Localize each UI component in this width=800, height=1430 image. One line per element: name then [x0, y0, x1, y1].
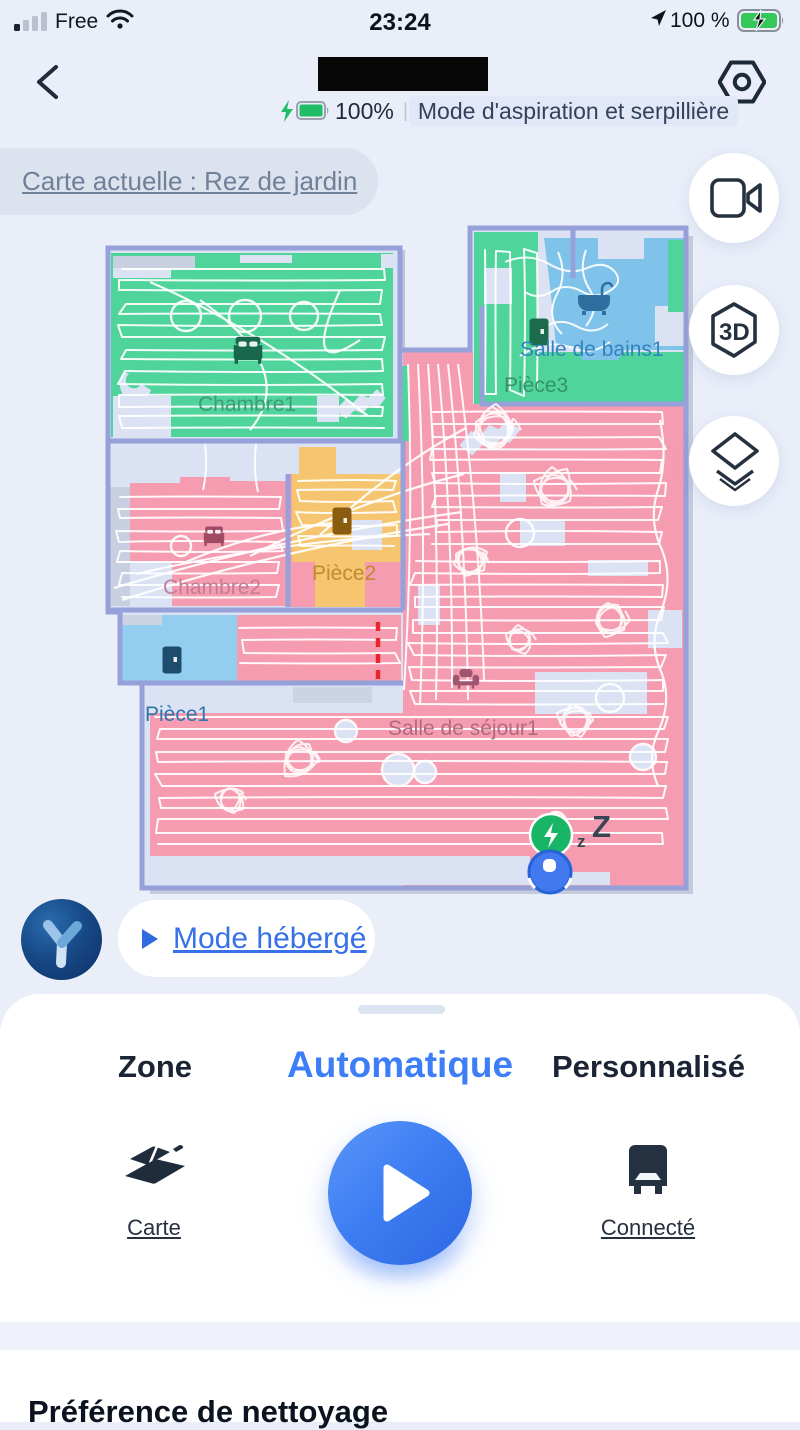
svg-text:Pièce2: Pièce2 [312, 562, 376, 585]
svg-text:z: z [577, 832, 586, 851]
svg-text:3D: 3D [719, 319, 750, 346]
svg-text:Chambre1: Chambre1 [198, 393, 296, 416]
svg-text:Salle de bains1: Salle de bains1 [520, 338, 664, 361]
svg-text:Pièce3: Pièce3 [504, 374, 568, 397]
svg-text:Salle de séjour1: Salle de séjour1 [388, 717, 539, 740]
svg-text:Z: Z [592, 809, 611, 844]
svg-text:Pièce1: Pièce1 [145, 703, 209, 726]
svg-text:Chambre2: Chambre2 [163, 576, 261, 599]
